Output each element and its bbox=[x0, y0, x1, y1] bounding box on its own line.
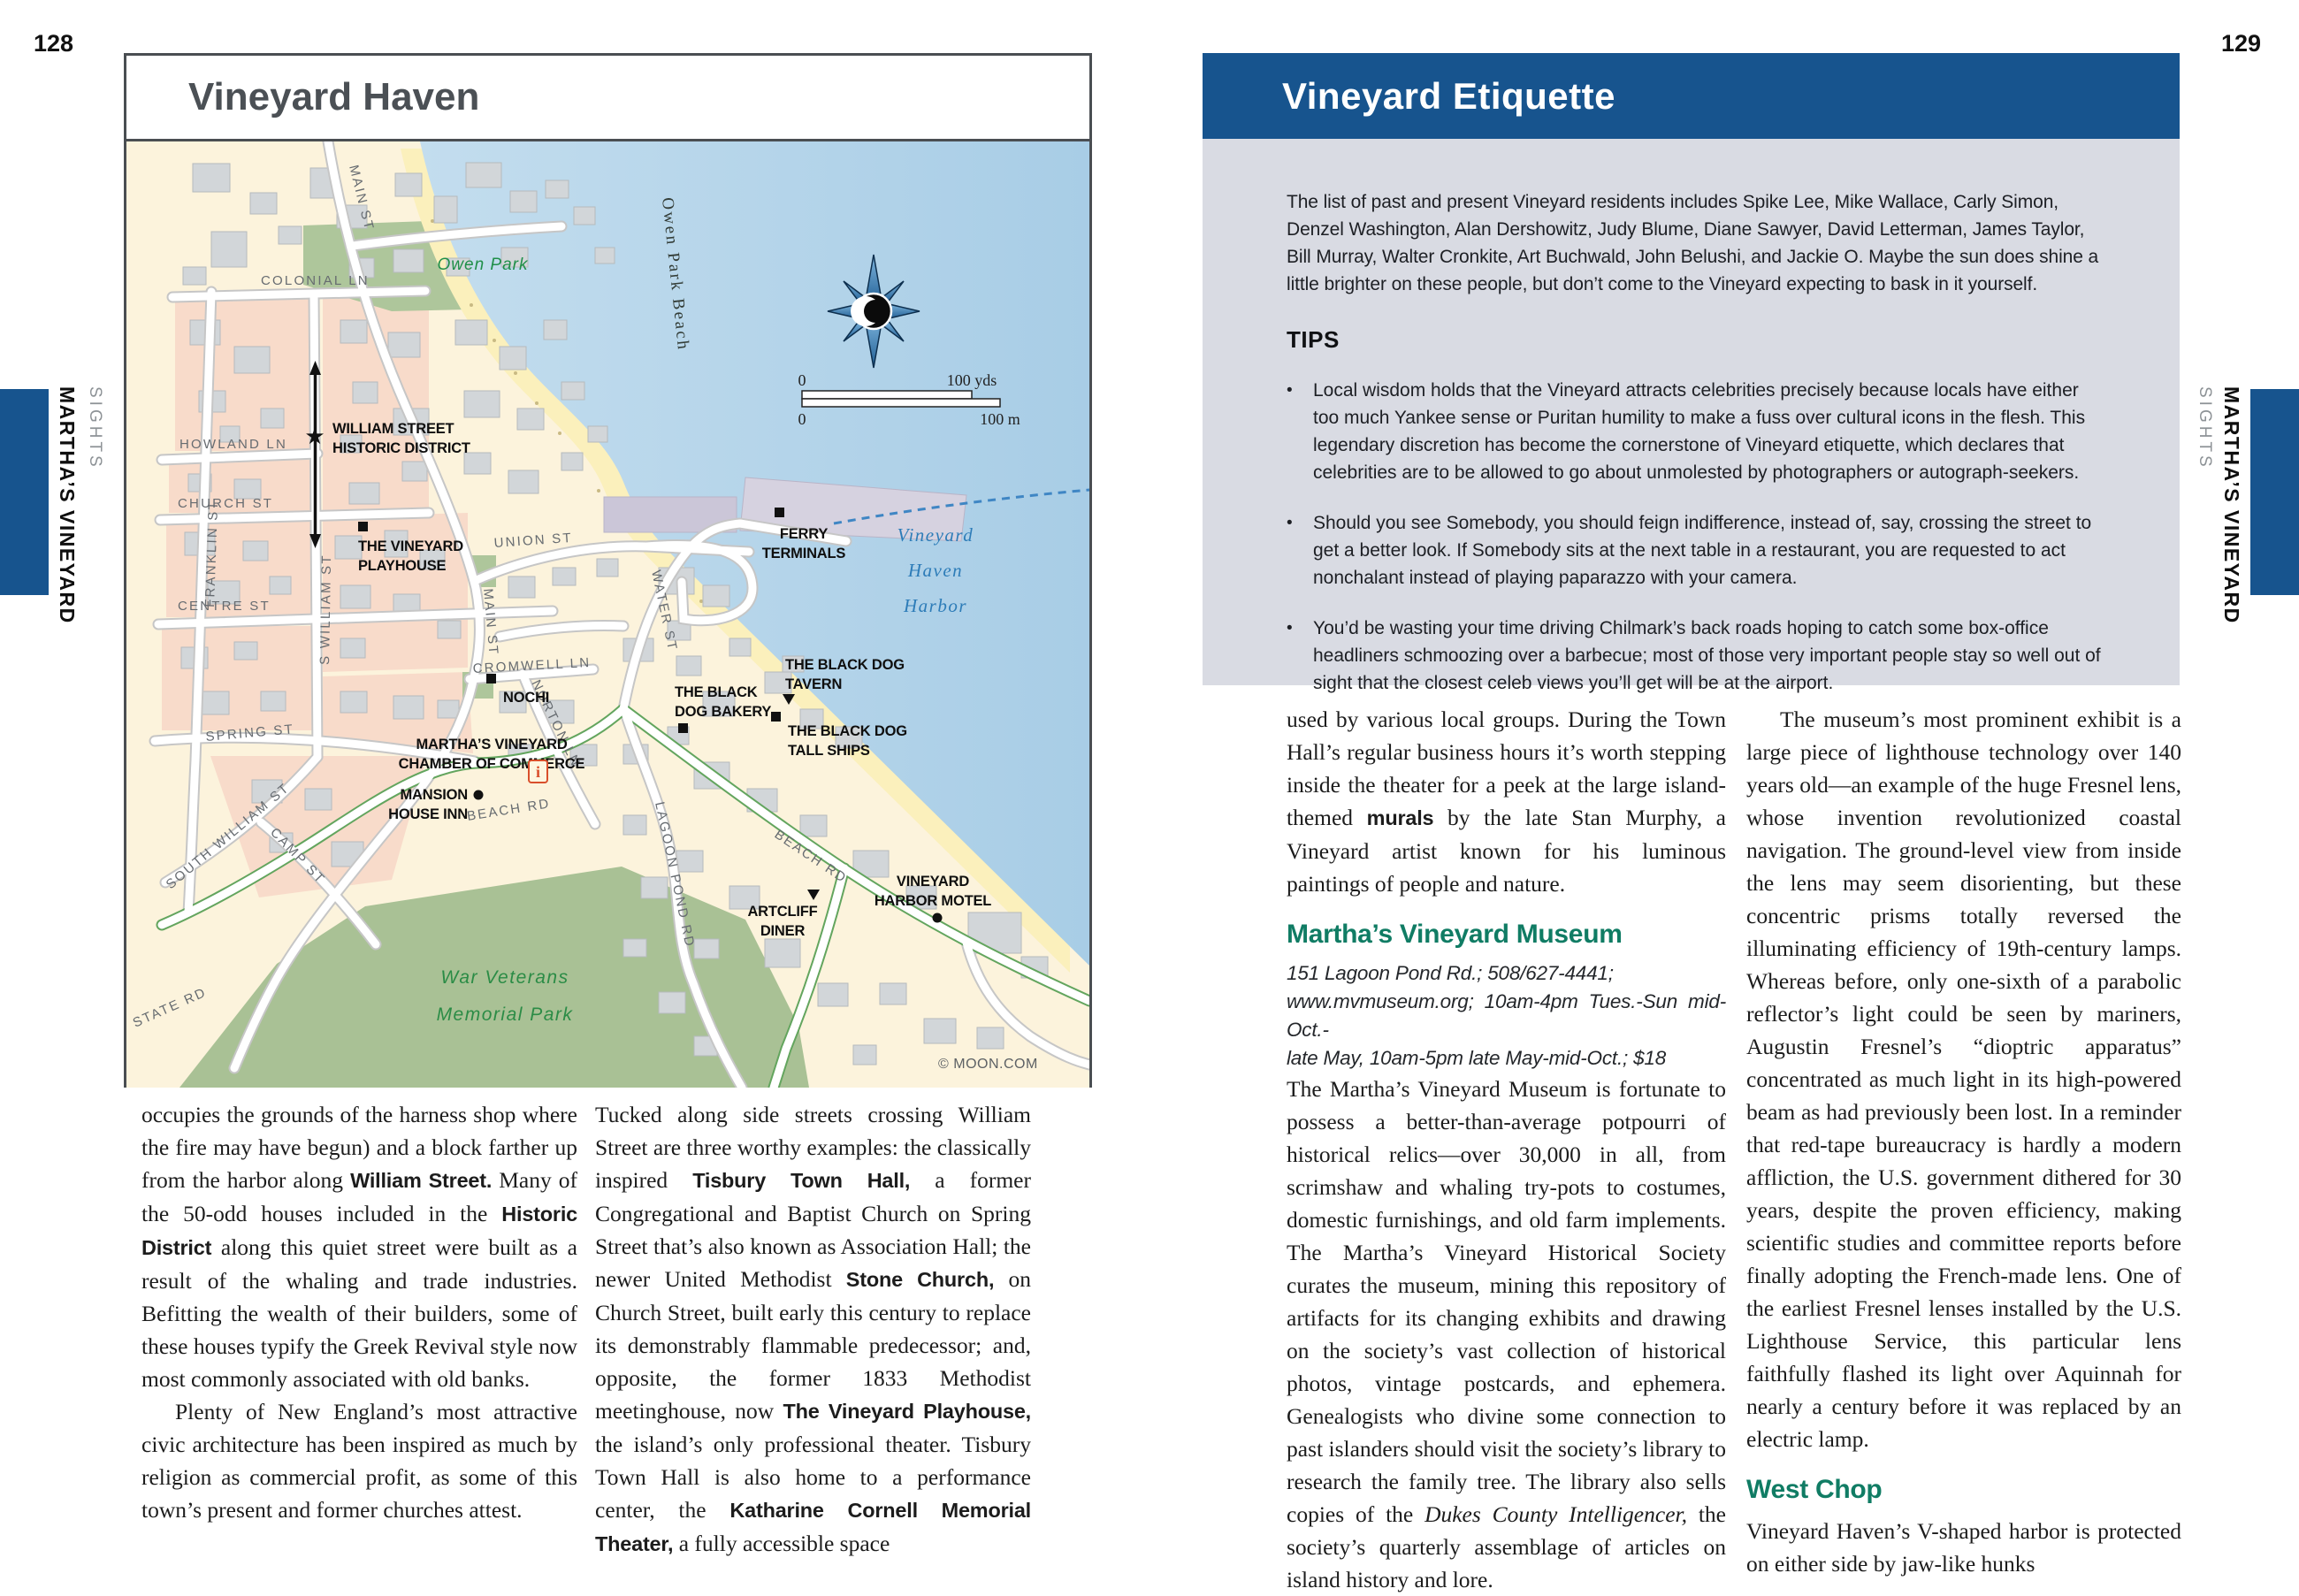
paragraph: The museum’s most prominent exhibit is a… bbox=[1746, 703, 2181, 1455]
harbor-label-line3: Harbor bbox=[903, 595, 967, 616]
poi-nochi: NOCHI bbox=[503, 690, 549, 706]
etiquette-box-title: Vineyard Etiquette bbox=[1203, 53, 2180, 139]
tip-item: • You’d be wasting your time driving Chi… bbox=[1287, 615, 2104, 697]
poi-artcliff-line2: DINER bbox=[760, 923, 806, 939]
war-memorial-label-line2: Memorial Park bbox=[437, 1004, 574, 1025]
map-card: Vineyard Haven bbox=[124, 53, 1092, 1088]
bakery-marker-icon bbox=[678, 723, 688, 733]
tips-heading: TIPS bbox=[1287, 326, 2104, 354]
poi-tall-ships: THE BLACK DOG bbox=[788, 723, 907, 739]
playhouse-marker-icon bbox=[358, 522, 368, 531]
poi-mansion: MANSION bbox=[400, 787, 468, 803]
scale-zero-yds: 0 bbox=[798, 371, 806, 389]
museum-heading: Martha’s Vineyard Museum bbox=[1287, 918, 1726, 951]
poi-artcliff: ARTCLIFF bbox=[747, 904, 817, 920]
poi-motel: VINEYARD bbox=[897, 874, 969, 890]
poi-historic-district: WILLIAM STREET bbox=[332, 421, 454, 437]
vineyard-haven-map: ★ MAIN ST COLONIAL LN HOWLAND LN CHURCH … bbox=[126, 141, 1089, 1088]
poi-ferry-line2: TERMINALS bbox=[762, 546, 846, 561]
poi-playhouse-line2: PLAYHOUSE bbox=[358, 558, 447, 574]
poi-historic-district-line2: HISTORIC DISTRICT bbox=[332, 440, 470, 456]
poi-tavern: THE BLACK DOG bbox=[785, 657, 905, 673]
mansion-marker-icon bbox=[474, 790, 484, 800]
poi-playhouse: THE VINEYARD bbox=[358, 538, 463, 554]
poi-motel-line2: HARBOR MOTEL bbox=[875, 893, 991, 909]
street-label: CHURCH ST bbox=[178, 496, 273, 511]
historic-district-star-icon: ★ bbox=[304, 423, 325, 449]
left-page-column-2: Tucked along side streets crossing Willi… bbox=[595, 1098, 1031, 1561]
nochi-marker-icon bbox=[486, 674, 496, 683]
poi-bakery-line2: DOG BAKERY bbox=[675, 704, 771, 720]
poi-chamber-line2: CHAMBER OF COMMERCE bbox=[399, 756, 585, 772]
paragraph: used by various local groups. During the… bbox=[1287, 703, 1726, 900]
tip-item: • Should you see Somebody, you should fe… bbox=[1287, 509, 2104, 592]
museum-info-line: 151 Lagoon Pond Rd.; 508/627-4441; bbox=[1287, 959, 1726, 988]
owen-park-label: Owen Park bbox=[438, 256, 529, 274]
right-chapter-tab-label: MARTHA’S VINEYARD bbox=[2219, 386, 2243, 624]
etiquette-intro: The list of past and present Vineyard re… bbox=[1287, 188, 2104, 298]
left-page-number: 128 bbox=[34, 30, 73, 57]
left-chapter-tab-label: MARTHA’S VINEYARD bbox=[55, 386, 79, 624]
poi-chamber: MARTHA’S VINEYARD bbox=[416, 737, 567, 752]
poi-mansion-line2: HOUSE INN bbox=[388, 806, 468, 822]
museum-info-line: late May, 10am-5pm late May-mid-Oct.; $1… bbox=[1287, 1044, 1726, 1073]
street-label: CENTRE ST bbox=[178, 599, 271, 614]
bullet-icon: • bbox=[1287, 377, 1313, 486]
map-copyright: © MOON.COM bbox=[938, 1057, 1038, 1072]
paragraph: The Martha’s Vineyard Museum is fortunat… bbox=[1287, 1073, 1726, 1596]
street-label: COLONIAL LN bbox=[261, 273, 370, 288]
etiquette-box-header: Vineyard Etiquette bbox=[1203, 53, 2180, 139]
right-page-column-2: The museum’s most prominent exhibit is a… bbox=[1746, 703, 2181, 1580]
poi-bakery: THE BLACK bbox=[675, 684, 758, 700]
scale-100m: 100 m bbox=[980, 410, 1020, 428]
poi-tall-ships-line2: TALL SHIPS bbox=[788, 743, 870, 759]
museum-info-line: www.mvmuseum.org; 10am-4pm Tues.-Sun mid… bbox=[1287, 988, 1726, 1044]
harbor-label-line2: Haven bbox=[907, 560, 963, 581]
svg-text:i: i bbox=[536, 763, 540, 781]
bullet-icon: • bbox=[1287, 509, 1313, 592]
tall-ships-marker-icon bbox=[771, 712, 781, 722]
left-section-tab-label: SIGHTS bbox=[85, 386, 104, 470]
paragraph: Vineyard Haven’s V-shaped harbor is prot… bbox=[1746, 1515, 2181, 1580]
tip-item: • Local wisdom holds that the Vineyard a… bbox=[1287, 377, 2104, 486]
map-title: Vineyard Haven bbox=[126, 56, 1089, 141]
left-chapter-tab-bar bbox=[0, 389, 49, 595]
bullet-icon: • bbox=[1287, 615, 1313, 697]
right-section-tab-label: SIGHTS bbox=[2195, 386, 2214, 470]
paragraph: Plenty of New England’s most attractive … bbox=[141, 1395, 577, 1526]
harbor-label-line1: Vineyard bbox=[897, 524, 974, 546]
right-chapter-tab-bar bbox=[2250, 389, 2299, 595]
west-chop-heading: West Chop bbox=[1746, 1473, 2181, 1506]
scale-100yds: 100 yds bbox=[947, 371, 997, 389]
war-memorial-label-line1: War Veterans bbox=[440, 967, 569, 988]
ferry-marker-icon bbox=[775, 508, 784, 517]
book-spread: { "colors":{"accent_blue":"#17548e","tea… bbox=[0, 0, 2299, 1568]
info-icon: i bbox=[529, 760, 547, 783]
tip-text: Should you see Somebody, you should feig… bbox=[1313, 509, 2104, 592]
poi-ferry: FERRY bbox=[780, 526, 829, 542]
tip-text: You’d be wasting your time driving Chilm… bbox=[1313, 615, 2104, 697]
motel-marker-icon bbox=[933, 913, 943, 923]
paragraph: occupies the grounds of the harness shop… bbox=[141, 1098, 577, 1395]
right-page-number: 129 bbox=[2221, 30, 2261, 57]
street-label: S WILLIAM ST bbox=[317, 554, 334, 665]
right-page-column-1: used by various local groups. During the… bbox=[1287, 703, 1726, 1596]
tip-text: Local wisdom holds that the Vineyard att… bbox=[1313, 377, 2104, 486]
street-label: HOWLAND LN bbox=[179, 437, 287, 452]
poi-tavern-line2: TAVERN bbox=[785, 676, 842, 692]
scale-zero-m: 0 bbox=[798, 410, 806, 428]
paragraph: Tucked along side streets crossing Willi… bbox=[595, 1098, 1031, 1561]
left-page-column-1: occupies the grounds of the harness shop… bbox=[141, 1098, 577, 1526]
etiquette-box-body: The list of past and present Vineyard re… bbox=[1203, 139, 2180, 685]
